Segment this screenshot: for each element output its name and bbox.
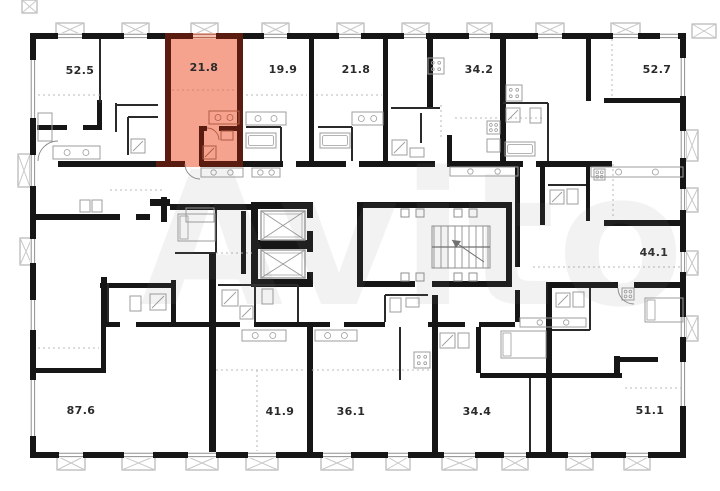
fixture-diag-icon: [222, 290, 238, 306]
balcony: [321, 456, 353, 470]
fixture-counter-icon: [246, 112, 286, 125]
fixture-rect-icon: [262, 289, 273, 304]
stair-post: [401, 273, 409, 281]
elevator-shaft-icon: [261, 250, 305, 278]
door-arc-icon: [38, 141, 58, 161]
fixture-rect-icon: [390, 298, 401, 312]
floorplan-image: 52.521.819.921.834.252.744.187.641.936.1…: [0, 0, 720, 491]
fixture-counter-icon: [315, 330, 357, 341]
fixture-bed-icon: [501, 331, 546, 358]
unit-area-label: 87.6: [67, 404, 96, 417]
stair-post: [416, 209, 424, 217]
fixture-counter-icon: [242, 330, 286, 341]
stair-post: [401, 209, 409, 217]
balcony: [442, 456, 477, 470]
fixture-diag-icon: [131, 139, 145, 153]
interior-walls: [36, 39, 686, 453]
fixture-counter-icon: [53, 146, 100, 159]
fixture-counter-icon: [252, 168, 280, 177]
stair-post: [416, 273, 424, 281]
fixture-stove-icon: [506, 85, 522, 101]
unit-area-label: 21.8: [190, 61, 219, 74]
fixture-rect-icon: [458, 333, 469, 348]
fixture-counter-icon: [450, 167, 518, 176]
fixture-diag-icon: [440, 333, 455, 348]
fixture-diag-icon: [392, 140, 407, 155]
fixture-rect-icon: [92, 200, 102, 212]
balcony: [186, 456, 218, 470]
balcony: [122, 456, 155, 470]
unit-area-label: 52.5: [66, 64, 95, 77]
fixture-stove-icon: [594, 169, 605, 180]
fixture-rect-icon: [410, 148, 424, 157]
stair-post: [454, 273, 462, 281]
unit-area-label: 52.7: [643, 63, 672, 76]
balcony: [692, 24, 716, 38]
fixture-rect2-icon: [246, 133, 276, 148]
unit-labels: 52.521.819.921.834.252.744.187.641.936.1…: [66, 61, 672, 418]
balcony: [686, 130, 698, 161]
fixture-diag-icon: [550, 190, 564, 204]
unit-area-label: 36.1: [337, 405, 366, 418]
fixture-rect-icon: [186, 208, 214, 222]
fixture-rect-icon: [406, 298, 419, 307]
balcony: [18, 154, 30, 187]
fixture-rect2-icon: [505, 142, 535, 156]
fixture-counter-icon: [352, 112, 383, 125]
balcony: [686, 188, 698, 212]
fixture-counter-icon: [520, 318, 586, 327]
fixture-rect-icon: [130, 296, 141, 311]
fixture-rect2-icon: [320, 133, 350, 148]
unit-area-label: 51.1: [636, 404, 665, 417]
stair-post: [469, 209, 477, 217]
balcony: [502, 456, 528, 470]
stair-post: [454, 209, 462, 217]
balcony: [386, 456, 410, 470]
unit-area-label: 21.8: [342, 63, 371, 76]
balcony: [566, 456, 593, 470]
staircase-icon: [401, 209, 490, 281]
fixture-stove-icon: [487, 121, 500, 134]
fixture-diag-icon: [240, 306, 253, 319]
floorplan-svg: 52.521.819.921.834.252.744.187.641.936.1…: [0, 0, 720, 491]
fixture-rect-icon: [530, 108, 541, 123]
fixture-bed-icon: [178, 214, 215, 241]
fixture-counter-icon: [201, 168, 243, 177]
fixture-rect-icon: [487, 139, 500, 152]
unit-area-label: 44.1: [640, 246, 669, 259]
fixture-bed-icon: [645, 298, 683, 322]
balcony: [686, 251, 698, 275]
balcony: [22, 0, 37, 13]
fixture-rect-icon: [567, 189, 578, 204]
fixture-stove-icon: [414, 352, 430, 368]
balcony: [686, 316, 698, 341]
balcony: [246, 456, 278, 470]
fixture-stove-icon: [622, 288, 634, 300]
fixture-rect-icon: [80, 200, 90, 212]
fixture-diag-icon: [506, 108, 520, 122]
balcony: [57, 456, 85, 470]
unit-area-label: 34.4: [463, 405, 492, 418]
elevator-shaft-icon: [261, 211, 305, 240]
unit-area-label: 19.9: [269, 63, 298, 76]
fixture-diag-icon: [556, 293, 570, 307]
fixture-rect-icon: [573, 292, 584, 307]
balcony: [624, 456, 650, 470]
fixture-diag-icon: [150, 294, 166, 310]
unit-area-label: 41.9: [266, 405, 295, 418]
unit-area-label: 34.2: [465, 63, 494, 76]
stair-post: [469, 273, 477, 281]
